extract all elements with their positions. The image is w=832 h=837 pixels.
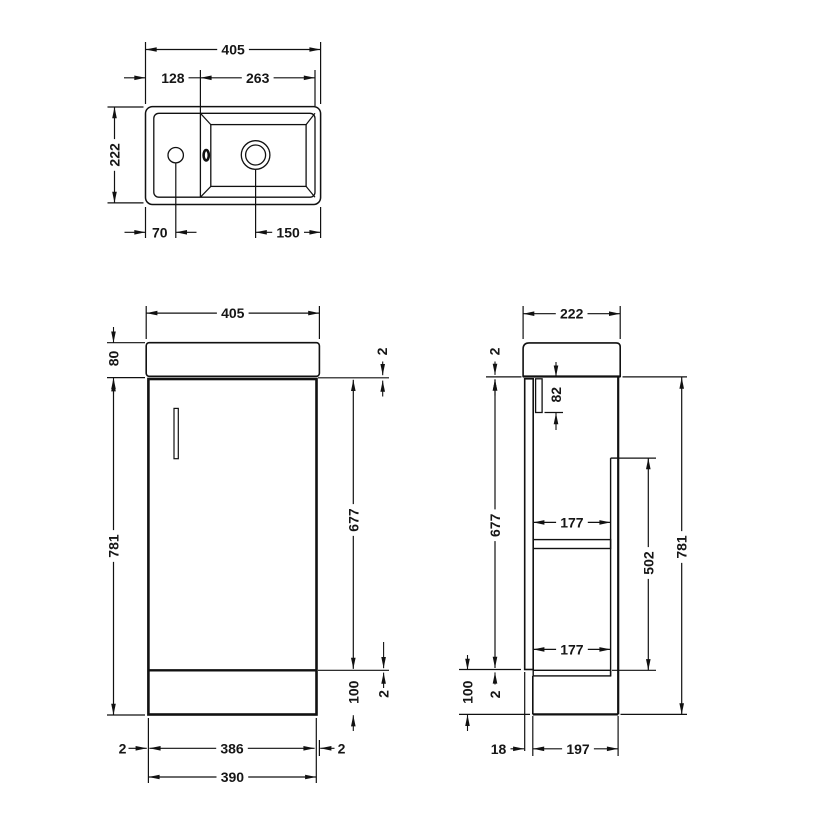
svg-text:390: 390	[221, 769, 245, 785]
svg-text:405: 405	[221, 42, 245, 58]
svg-text:80: 80	[106, 351, 122, 367]
svg-text:222: 222	[107, 143, 123, 167]
svg-text:177: 177	[560, 514, 584, 530]
svg-text:197: 197	[566, 741, 590, 757]
svg-text:781: 781	[674, 535, 690, 559]
svg-text:222: 222	[560, 306, 584, 322]
svg-text:2: 2	[338, 740, 346, 756]
svg-text:150: 150	[276, 224, 300, 240]
svg-text:502: 502	[640, 551, 656, 575]
svg-text:2: 2	[486, 347, 502, 355]
svg-text:2: 2	[374, 347, 390, 355]
svg-text:2: 2	[376, 690, 392, 698]
svg-text:2: 2	[119, 740, 127, 756]
svg-text:18: 18	[491, 741, 507, 757]
svg-text:100: 100	[460, 680, 476, 704]
svg-text:386: 386	[220, 740, 244, 756]
svg-text:128: 128	[161, 70, 185, 86]
svg-text:177: 177	[560, 641, 584, 657]
svg-text:781: 781	[106, 534, 122, 558]
svg-text:263: 263	[246, 70, 270, 86]
svg-text:2: 2	[487, 690, 503, 698]
svg-text:82: 82	[548, 387, 564, 403]
svg-text:70: 70	[152, 224, 168, 240]
svg-text:100: 100	[345, 680, 361, 704]
svg-text:405: 405	[221, 305, 245, 321]
svg-text:677: 677	[345, 508, 361, 532]
svg-text:677: 677	[487, 513, 503, 537]
